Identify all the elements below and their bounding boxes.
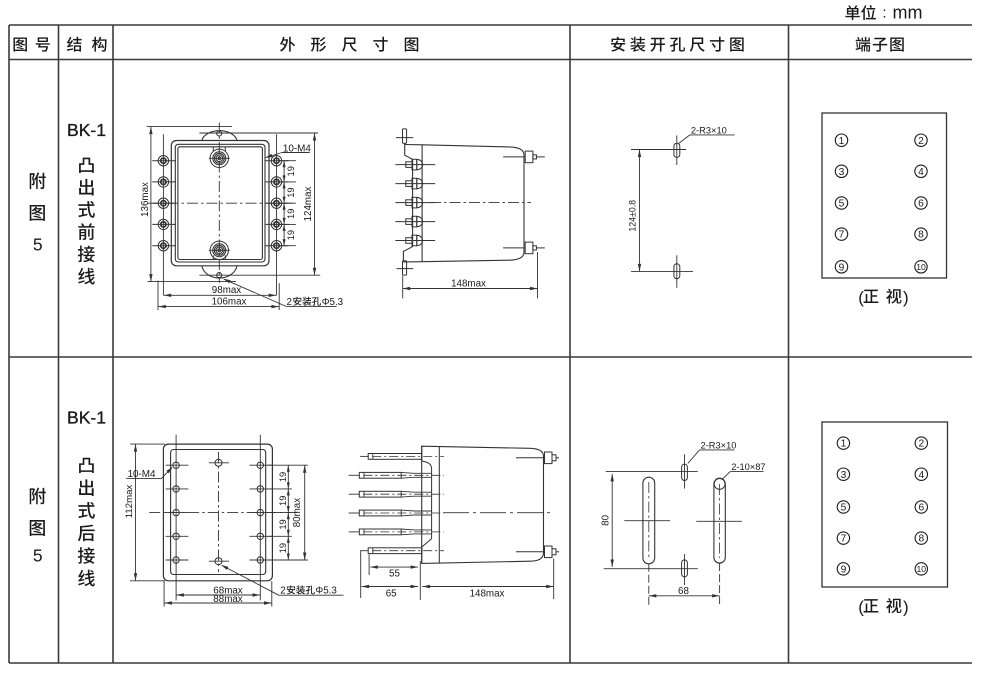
svg-text:68: 68 bbox=[678, 586, 689, 597]
svg-text:136max: 136max bbox=[140, 182, 151, 217]
svg-text:112max: 112max bbox=[124, 485, 135, 519]
svg-text:98max: 98max bbox=[212, 285, 242, 296]
svg-text:19: 19 bbox=[278, 543, 288, 553]
svg-text:9: 9 bbox=[841, 565, 847, 576]
svg-text:55: 55 bbox=[389, 568, 400, 579]
svg-text:148max: 148max bbox=[451, 278, 486, 289]
svg-text:4: 4 bbox=[918, 470, 924, 481]
svg-text:): ) bbox=[903, 288, 909, 307]
svg-text:2-10×87: 2-10×87 bbox=[731, 462, 765, 472]
svg-text:3: 3 bbox=[839, 167, 845, 178]
svg-text:(: ( bbox=[858, 288, 864, 307]
svg-text:80: 80 bbox=[601, 514, 612, 525]
svg-text:(: ( bbox=[858, 598, 864, 617]
svg-text:7: 7 bbox=[841, 534, 847, 545]
svg-text:): ) bbox=[903, 598, 909, 617]
svg-text:8: 8 bbox=[918, 534, 924, 545]
svg-text:2: 2 bbox=[918, 136, 924, 147]
svg-text:BK-1: BK-1 bbox=[67, 120, 106, 140]
svg-text:2: 2 bbox=[918, 439, 924, 450]
svg-text:2-R3×10: 2-R3×10 bbox=[701, 440, 737, 450]
svg-text:124max: 124max bbox=[303, 186, 314, 221]
svg-text:9: 9 bbox=[839, 262, 845, 273]
svg-text:1: 1 bbox=[839, 136, 845, 147]
svg-text:19: 19 bbox=[286, 166, 296, 176]
svg-text:19: 19 bbox=[286, 187, 296, 197]
svg-text:80max: 80max bbox=[292, 498, 303, 528]
svg-text:65: 65 bbox=[386, 589, 397, 600]
svg-text:19: 19 bbox=[286, 230, 296, 240]
svg-text:88max: 88max bbox=[213, 594, 243, 605]
svg-text:8: 8 bbox=[918, 230, 924, 241]
svg-text:10: 10 bbox=[917, 564, 927, 574]
svg-text:7: 7 bbox=[839, 230, 845, 241]
svg-text:6: 6 bbox=[918, 199, 924, 210]
svg-text::: : bbox=[882, 5, 886, 22]
svg-text:5: 5 bbox=[33, 546, 43, 566]
svg-text:19: 19 bbox=[278, 496, 288, 506]
svg-text:BK-1: BK-1 bbox=[67, 408, 106, 428]
svg-text:106max: 106max bbox=[212, 296, 247, 307]
svg-text:19: 19 bbox=[278, 472, 288, 482]
svg-text:5: 5 bbox=[839, 199, 845, 210]
svg-text:5: 5 bbox=[841, 503, 847, 514]
svg-text:6: 6 bbox=[918, 503, 924, 514]
svg-text:1: 1 bbox=[841, 439, 847, 450]
svg-text:10-M4: 10-M4 bbox=[283, 144, 311, 155]
svg-text:4: 4 bbox=[918, 167, 924, 178]
svg-text:19: 19 bbox=[286, 209, 296, 219]
svg-text:mm: mm bbox=[893, 3, 923, 23]
svg-text:3: 3 bbox=[841, 470, 847, 481]
svg-text:5: 5 bbox=[33, 234, 43, 254]
svg-text:124±0.8: 124±0.8 bbox=[627, 200, 637, 232]
svg-text:19: 19 bbox=[278, 519, 288, 529]
svg-text:2-R3×10: 2-R3×10 bbox=[691, 125, 727, 135]
svg-text:148max: 148max bbox=[470, 588, 505, 599]
svg-text:10: 10 bbox=[916, 262, 926, 272]
